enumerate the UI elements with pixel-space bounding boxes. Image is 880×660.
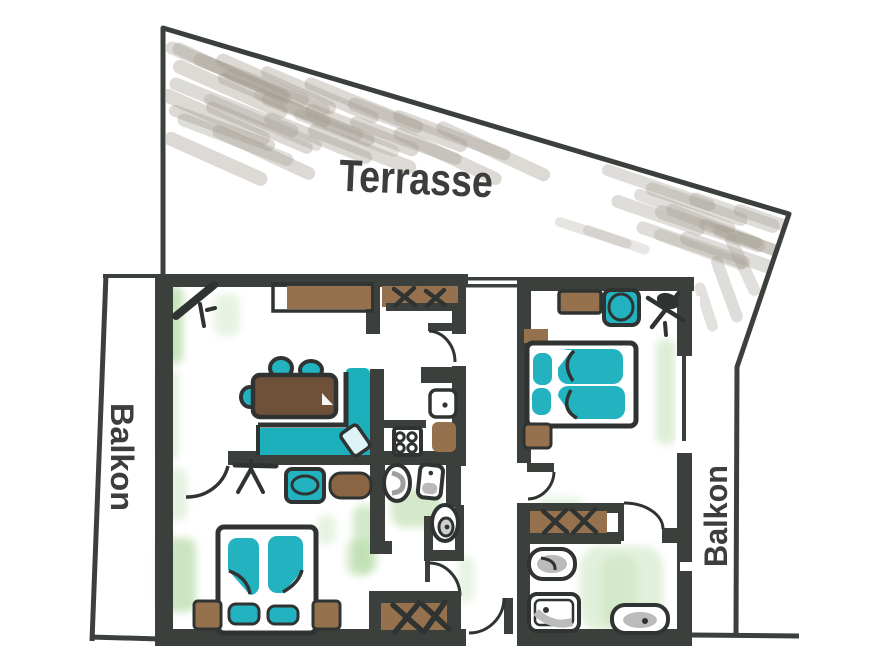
- svg-text:Terrasse: Terrasse: [338, 150, 494, 208]
- svg-text:Balkon: Balkon: [698, 465, 734, 567]
- svg-text:Balkon: Balkon: [104, 403, 140, 511]
